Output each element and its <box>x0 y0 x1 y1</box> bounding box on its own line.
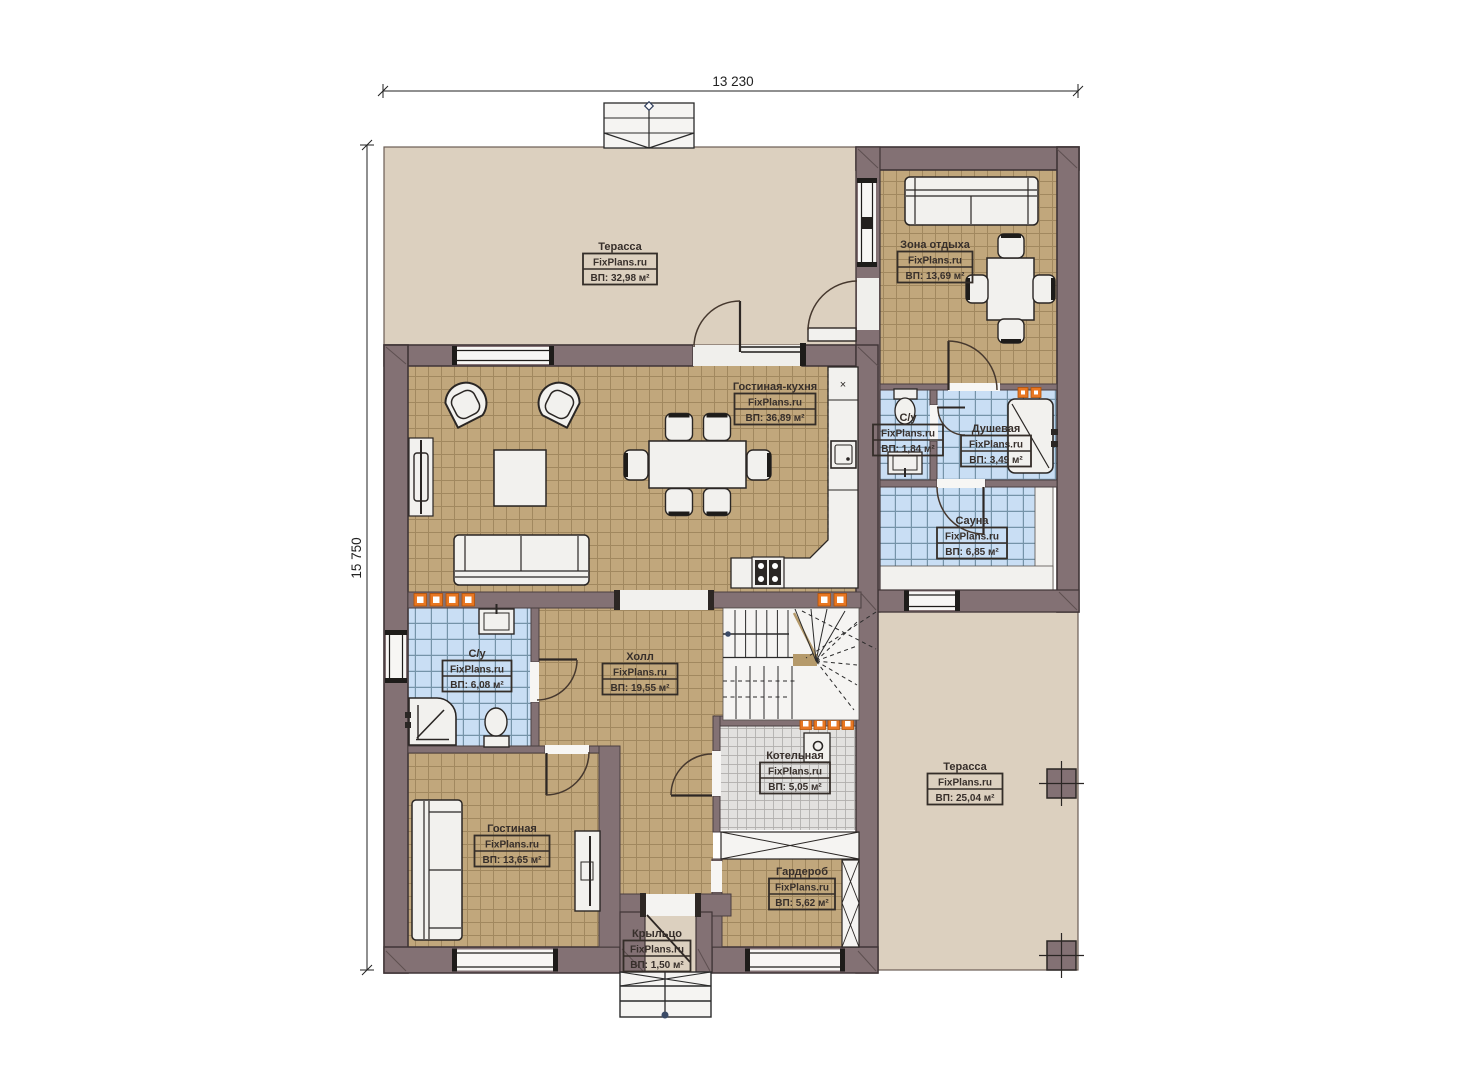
svg-text:FixPlans.ru: FixPlans.ru <box>593 258 647 269</box>
svg-text:С/у: С/у <box>899 412 917 424</box>
svg-text:ВП: 25,04 м²: ВП: 25,04 м² <box>935 793 995 804</box>
svg-text:ВП: 36,89 м²: ВП: 36,89 м² <box>745 413 805 424</box>
svg-text:Сауна: Сауна <box>955 515 989 527</box>
svg-text:Терасса: Терасса <box>943 761 987 773</box>
svg-text:FixPlans.ru: FixPlans.ru <box>630 945 684 956</box>
svg-text:ВП: 5,05 м²: ВП: 5,05 м² <box>768 782 822 793</box>
svg-text:Душевая: Душевая <box>972 423 1021 435</box>
svg-text:Котельная: Котельная <box>766 750 824 762</box>
svg-text:FixPlans.ru: FixPlans.ru <box>908 256 962 267</box>
svg-text:FixPlans.ru: FixPlans.ru <box>768 767 822 778</box>
svg-text:Крыльцо: Крыльцо <box>632 928 682 940</box>
svg-text:Гостиная: Гостиная <box>487 823 537 835</box>
svg-text:FixPlans.ru: FixPlans.ru <box>613 668 667 679</box>
svg-text:ВП: 6,85 м²: ВП: 6,85 м² <box>945 547 999 558</box>
svg-text:ВП: 1,50 м²: ВП: 1,50 м² <box>630 960 684 971</box>
svg-text:Терасса: Терасса <box>598 241 642 253</box>
svg-text:15 750: 15 750 <box>349 537 364 578</box>
svg-text:13 230: 13 230 <box>712 74 753 89</box>
svg-text:×: × <box>840 379 846 391</box>
svg-text:FixPlans.ru: FixPlans.ru <box>945 532 999 543</box>
svg-text:Холл: Холл <box>626 651 654 663</box>
svg-text:ВП: 13,69 м²: ВП: 13,69 м² <box>905 271 965 282</box>
svg-text:ВП: 13,65 м²: ВП: 13,65 м² <box>482 855 542 866</box>
svg-text:С/у: С/у <box>468 648 486 660</box>
svg-text:ВП: 3,49 м²: ВП: 3,49 м² <box>969 455 1023 466</box>
svg-text:Гардероб: Гардероб <box>776 866 828 878</box>
svg-text:FixPlans.ru: FixPlans.ru <box>485 840 539 851</box>
svg-text:FixPlans.ru: FixPlans.ru <box>969 440 1023 451</box>
svg-text:ВП: 32,98 м²: ВП: 32,98 м² <box>590 273 650 284</box>
svg-text:FixPlans.ru: FixPlans.ru <box>450 665 504 676</box>
svg-text:FixPlans.ru: FixPlans.ru <box>938 778 992 789</box>
svg-text:Гостиная-кухня: Гостиная-кухня <box>733 381 817 393</box>
svg-text:ВП: 6,08 м²: ВП: 6,08 м² <box>450 680 504 691</box>
svg-text:ВП: 19,55 м²: ВП: 19,55 м² <box>610 683 670 694</box>
svg-text:ВП: 5,62 м²: ВП: 5,62 м² <box>775 898 829 909</box>
svg-text:FixPlans.ru: FixPlans.ru <box>775 883 829 894</box>
svg-text:Зона отдыха: Зона отдыха <box>900 239 971 251</box>
svg-text:FixPlans.ru: FixPlans.ru <box>748 398 802 409</box>
svg-text:FixPlans.ru: FixPlans.ru <box>881 429 935 440</box>
svg-text:ВП: 1,84 м²: ВП: 1,84 м² <box>881 444 935 455</box>
